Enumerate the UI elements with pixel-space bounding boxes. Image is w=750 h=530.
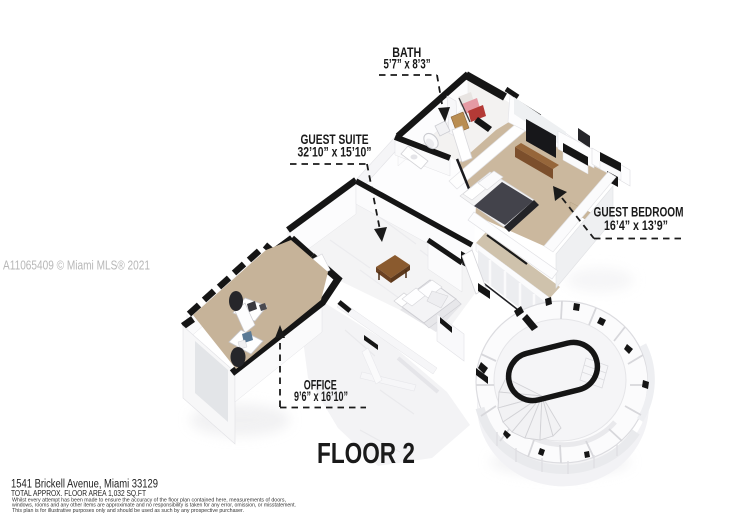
svg-text:32’10” x 15’10”: 32’10” x 15’10” xyxy=(298,145,372,160)
svg-text:FLOOR 2: FLOOR 2 xyxy=(317,436,415,469)
svg-text:5’7” x 8’3”: 5’7” x 8’3” xyxy=(384,57,431,72)
svg-text:A11065409 © Miami MLS® 2021: A11065409 © Miami MLS® 2021 xyxy=(3,259,150,273)
svg-text:This plan is for illustrative: This plan is for illustrative purposes o… xyxy=(12,508,244,514)
svg-text:16’4” x 13’9”: 16’4” x 13’9” xyxy=(604,218,668,233)
svg-text:9’6” x 16’10”: 9’6” x 16’10” xyxy=(294,389,348,404)
